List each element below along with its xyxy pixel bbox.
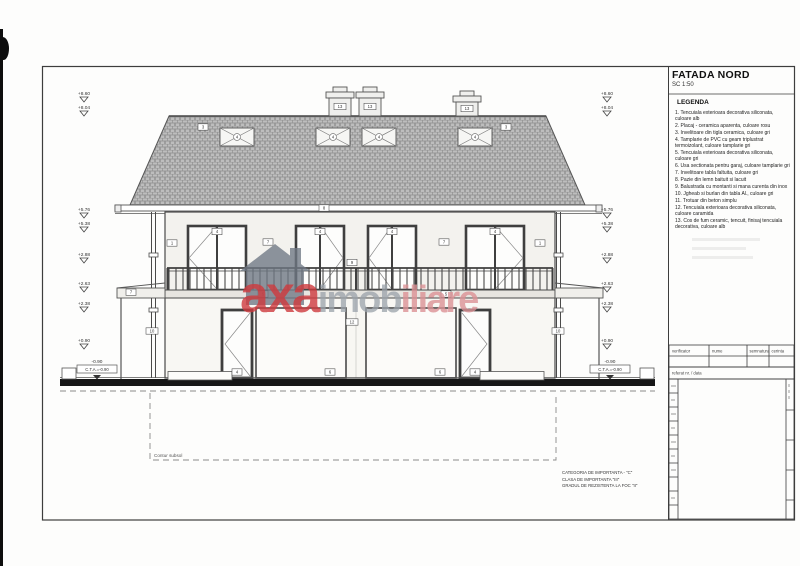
stamp-smudge: [692, 247, 746, 250]
callout-downspout-10b: 10: [552, 328, 564, 334]
scanned-sheet: Contur subsol -0.90 C.T.A.=-0.90 -0.90 C…: [0, 0, 800, 566]
legend-item: 10. Jgheab si burlan din tabla Al., culo…: [675, 191, 791, 197]
callout-wall-7a: 7: [263, 239, 273, 245]
callout-canopy-7: 7: [126, 289, 136, 295]
garage-door-right: [366, 308, 456, 378]
callout-fascia-8: 8: [319, 205, 329, 211]
entry-door-left: [222, 310, 252, 378]
note-line: CLASA DE IMPORTANTA "III": [562, 477, 668, 484]
callout-wall-1b: 1: [535, 240, 545, 246]
legend-heading: LEGENDA: [677, 99, 709, 106]
svg-text:+0.90: +0.90: [78, 338, 90, 344]
svg-text:13: 13: [465, 106, 470, 111]
svg-text:+2.38: +2.38: [601, 301, 613, 307]
roof: [115, 116, 602, 214]
fascia-board: [115, 205, 602, 211]
legend-item: 5. Tencuiala exterioara decorativa silic…: [675, 150, 791, 162]
svg-text:10: 10: [556, 329, 561, 334]
svg-text:-0.90: -0.90: [605, 359, 616, 365]
svg-text:+5.38: +5.38: [78, 221, 90, 227]
svg-text:-0.90: -0.90: [92, 359, 103, 365]
callout-roof-3a: 3: [198, 124, 208, 130]
svg-text:+2.88: +2.88: [78, 252, 90, 258]
callout-wall-1a: 1: [167, 240, 177, 246]
svg-text:12: 12: [350, 320, 355, 325]
svg-text:+2.38: +2.38: [78, 301, 90, 307]
callout-door-4b: 4: [470, 369, 480, 375]
callout-garage-6b: 6: [435, 369, 445, 375]
legend-item: 11. Trotuar din beton simplu: [675, 198, 791, 204]
stamp-smudge: [692, 238, 760, 241]
callout-window-4b: 4: [315, 228, 325, 234]
callout-slab-5b: 5: [441, 291, 451, 297]
svg-text:C.T.A.=-0.90: C.T.A.=-0.90: [85, 367, 109, 372]
callout-chimney-13a: 13: [334, 103, 346, 109]
basement-outline: [60, 391, 655, 460]
svg-text:13: 13: [368, 104, 373, 109]
callout-downspout-10a: 10: [146, 328, 158, 334]
sidewalk-pad-right: [480, 372, 544, 381]
svg-text:+5.76: +5.76: [601, 207, 613, 213]
svg-text:10: 10: [150, 329, 155, 334]
svg-text:+8.60: +8.60: [78, 91, 90, 97]
legend-item: 4. Tamplarie de PVC cu geam triplustrat …: [675, 137, 791, 149]
svg-text:+2.88: +2.88: [601, 252, 613, 258]
legend-item: 12. Tencuiala exterioara decorativa sili…: [675, 205, 791, 217]
sheet-scale: SC 1:50: [672, 82, 694, 88]
svg-text:+5.38: +5.38: [601, 221, 613, 227]
callout-skylight-4a: 4: [234, 134, 241, 141]
svg-text:C.T.A.=-0.90: C.T.A.=-0.90: [598, 367, 622, 372]
callout-door-4a: 4: [232, 369, 242, 375]
callout-garage-6a: 6: [325, 369, 335, 375]
callout-window-4c: 4: [387, 228, 397, 234]
sheet-title: FATADA NORD: [672, 69, 750, 81]
legend-item: 3. Invelitoare din tigla ceramica, culoa…: [675, 130, 791, 136]
callout-wall-7b: 7: [439, 239, 449, 245]
svg-text:+8.04: +8.04: [78, 105, 90, 111]
legend-item: 9. Balustrada cu montanti si mana curent…: [675, 184, 791, 190]
callout-skylight-4d: 4: [472, 134, 479, 141]
balcony-railing: [167, 268, 553, 290]
chimney-2: [356, 87, 384, 116]
legend-item: 6. Usa sectionata pentru garaj, culoare …: [675, 163, 791, 169]
note-line: CATEGORIA DE IMPORTANTA - "C": [562, 470, 668, 477]
callout-window-4a: 4: [212, 228, 222, 234]
legend-item: 2. Placaj - ceramica aparenta, culoare r…: [675, 123, 791, 129]
note-line: GRADUL DE REZISTENTA LA FOC "II": [562, 483, 668, 490]
svg-text:verificator: verificator: [672, 349, 691, 354]
garage-door-left: [256, 308, 346, 378]
callout-railing-9: 9: [347, 259, 357, 265]
legend-item: 7. Invelitoare tabla faltuita, culoare g…: [675, 170, 791, 176]
basement-label: Contur subsol: [154, 453, 182, 458]
importance-notes: CATEGORIA DE IMPORTANTA - "C" CLASA DE I…: [562, 470, 668, 490]
entry-door-right: [460, 310, 490, 378]
legend-list: 1. Tencuiala exterioara decorativa silic…: [675, 110, 791, 231]
legend-item: 13. Cos de fum ceramic, tencuit, finisaj…: [675, 218, 791, 230]
svg-text:nume: nume: [712, 349, 723, 354]
legend-item: 1. Tencuiala exterioara decorativa silic…: [675, 110, 791, 122]
legend-item: 8. Pazie din lemn baituit si lacuit: [675, 177, 791, 183]
svg-text:referat nr. / data: referat nr. / data: [672, 371, 702, 376]
title-block-smudges: [671, 384, 789, 498]
scan-edge-artifact: [0, 29, 3, 566]
callout-wall-12: 12: [346, 319, 358, 325]
svg-text:+2.63: +2.63: [78, 281, 90, 287]
svg-text:+2.63: +2.63: [601, 281, 613, 287]
svg-text:+5.76: +5.76: [78, 207, 90, 213]
callout-window-4d: 4: [490, 228, 500, 234]
callout-skylight-4b: 4: [330, 134, 337, 141]
callout-chimney-13c: 13: [461, 105, 473, 111]
svg-text:semnatura: semnatura: [750, 349, 770, 354]
sidewalk-pad-left: [168, 372, 232, 381]
svg-text:+8.04: +8.04: [601, 105, 613, 111]
chimney-1: [326, 87, 354, 116]
callout-roof-3b: 3: [501, 124, 511, 130]
callout-skylight-4c: 4: [376, 134, 383, 141]
title-block-headers: verificator nume semnatura cerinta refer…: [672, 349, 785, 376]
svg-text:13: 13: [338, 104, 343, 109]
cta-marker-left: -0.90 C.T.A.=-0.90: [77, 359, 117, 380]
cta-marker-right: -0.90 C.T.A.=-0.90: [590, 359, 630, 380]
stamp-smudge: [692, 256, 753, 259]
callout-chimney-13b: 13: [364, 103, 376, 109]
balcony-slab: [165, 290, 555, 298]
callout-slab-5a: 5: [258, 291, 268, 297]
chimney-3: [453, 91, 481, 116]
svg-text:+8.60: +8.60: [601, 91, 613, 97]
svg-text:+0.90: +0.90: [601, 338, 613, 344]
svg-text:cerinta: cerinta: [772, 349, 785, 354]
